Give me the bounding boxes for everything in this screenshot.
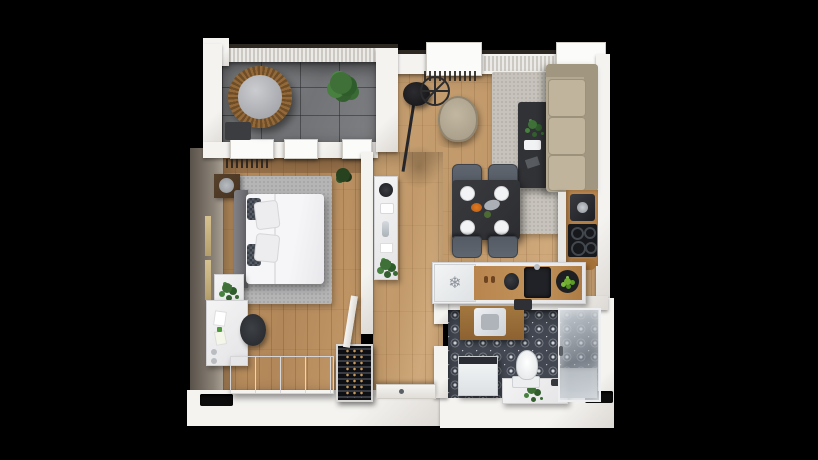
dining-table: [452, 180, 520, 240]
wall-mirror-2: [205, 260, 211, 300]
sofa-backrest-top: [546, 64, 598, 77]
right-wall: [596, 54, 610, 304]
sideboard-bowl: [379, 183, 393, 197]
sofa-cushion-2: [548, 117, 586, 155]
sideboard-dish: [380, 203, 394, 214]
coffee-table-tray: [524, 140, 541, 150]
burner-2: [584, 227, 596, 239]
shower-door-handle: [559, 346, 563, 356]
vanity-sink: [474, 308, 506, 336]
egg-chair-cushion: [238, 75, 283, 118]
burner-3: [571, 241, 586, 256]
fruit-apples: [564, 278, 571, 285]
plate-4: [494, 220, 509, 235]
armchair: [438, 96, 478, 142]
washer-control-panel: [459, 357, 497, 364]
sideboard-carafe: [382, 221, 389, 237]
balcony-door-frame-1: [230, 139, 274, 159]
wine-rack: [336, 344, 373, 402]
nightstand-tray: [219, 178, 234, 193]
dining-chair-bottom-left: [452, 236, 482, 258]
pillow-white-bottom: [254, 233, 281, 263]
desk-knobs: [211, 349, 217, 355]
bathroom-wall-shelf: [514, 299, 532, 310]
toilet-bowl: [516, 350, 538, 380]
wardrobe: [230, 356, 334, 394]
radiator-bedroom: [226, 159, 270, 168]
burner-4: [585, 242, 597, 254]
bathroom-vanity: [460, 306, 524, 340]
balcony-doormat: [225, 122, 251, 140]
vanity-basin: [481, 314, 499, 330]
faucet: [534, 264, 540, 270]
serving-plate-gray: [483, 198, 501, 212]
desk-accessory-green: [217, 327, 222, 332]
desk-chair: [240, 314, 266, 346]
cooktop: [568, 224, 597, 257]
counter-worktop-wood: [474, 266, 582, 300]
serving-dish-orange: [471, 203, 482, 212]
salt-shaker: [484, 276, 488, 283]
plate-3: [460, 220, 475, 235]
coffee-table-book: [525, 156, 540, 169]
desk-paper-1: [213, 310, 227, 327]
coffee-table: [518, 102, 548, 188]
hanging-egg-chair: [228, 66, 292, 128]
bathroom-left-wall-lower: [434, 346, 448, 398]
sofa-cushion-1: [548, 79, 586, 117]
coffee-table-plant: [528, 120, 537, 129]
wall-mirror-1: [205, 216, 211, 256]
snowflake-icon: ❄: [448, 275, 461, 291]
floor-plan: ❄: [0, 0, 818, 460]
washing-machine: [458, 356, 498, 396]
left-wall-upper: [203, 44, 222, 150]
balcony-plant: [330, 72, 352, 94]
wall-vent-left: [200, 394, 233, 406]
balcony-parapet-wall: [203, 44, 398, 62]
coffee-machine: [570, 194, 595, 221]
entry-door-leaf: [376, 384, 436, 399]
desk-paper-2: [214, 330, 227, 346]
pepper-shaker: [491, 276, 495, 283]
plate-1: [460, 186, 475, 201]
sofa: [546, 64, 598, 192]
sideboard-paper: [380, 243, 393, 253]
burner-1: [571, 227, 584, 240]
sideboard-plant: [380, 259, 391, 270]
window-balustrade: [482, 56, 556, 71]
coffee-machine-group: [577, 202, 588, 213]
balcony-living-divider-wall: [376, 48, 398, 152]
hallway-sideboard: [374, 176, 398, 280]
kettle: [504, 273, 519, 290]
pillow-white-top: [253, 200, 280, 231]
dining-chair-bottom-right: [488, 236, 518, 258]
sofa-backrest-right: [584, 64, 598, 192]
fruit-bowl: [556, 270, 579, 293]
bedroom-hallway-wall: [361, 152, 373, 334]
plate-2: [494, 186, 509, 201]
sink: [524, 267, 551, 298]
nightstand-plant: [222, 283, 232, 293]
bedroom-plant-small: [336, 168, 350, 182]
shower-enclosure: [558, 308, 601, 402]
entry-door-handle: [399, 389, 404, 394]
table-garnish: [484, 211, 491, 218]
fridge: ❄: [434, 264, 476, 302]
sofa-cushion-3: [548, 155, 586, 191]
balcony-door-frame-2: [284, 139, 318, 159]
